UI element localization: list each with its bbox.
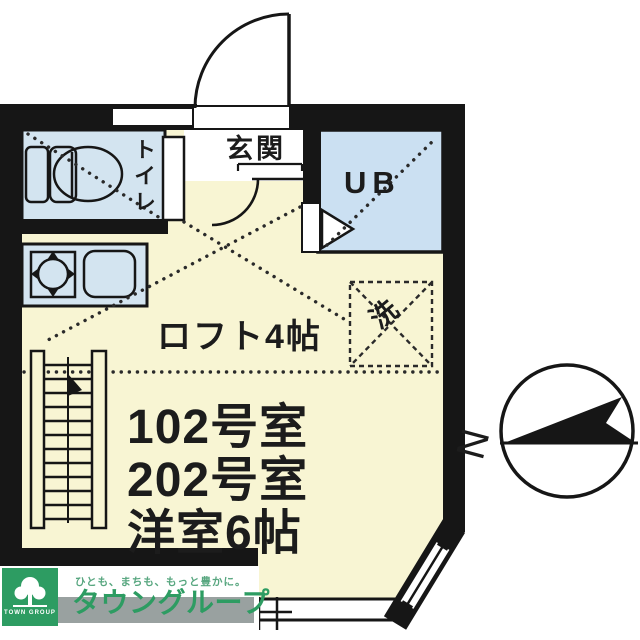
wall-left (0, 104, 22, 550)
unit-number-102: 102号室 (127, 404, 308, 452)
brand-tagline: ひとも、まちも、もっと豊かに。 (75, 577, 247, 588)
entrance-label: 玄関 (226, 136, 286, 163)
bottom-window (256, 597, 396, 630)
floor-plan-canvas: 玄関 トイレ UB ロフト4帖 洗 102号室 202号室 洋室6帖 N ひとも… (0, 0, 640, 640)
unit-bath-label: UB (344, 167, 401, 198)
toilet-door (163, 137, 184, 220)
loft-ladder (31, 351, 106, 528)
wall-entrance-bath (303, 128, 321, 208)
entry-door-threshold (193, 106, 290, 129)
loft-label: ロフト4帖 (157, 320, 322, 354)
brand-logo-caption: TOWN GROUP (2, 610, 58, 616)
entry-door-swing-arc (195, 14, 289, 108)
brand-company-name: タウングループ (72, 589, 270, 617)
toilet-label: トイレ (132, 138, 154, 216)
wall-right (443, 104, 465, 532)
compass-north-arrow (504, 397, 636, 443)
bath-door (302, 203, 320, 252)
top-wall-window (112, 108, 194, 126)
wall-top-right (288, 104, 465, 130)
wall-below-toilet (22, 219, 168, 234)
unit-number-202: 202号室 (127, 457, 308, 505)
compass (500, 365, 638, 497)
room-size-label: 洋室6帖 (127, 510, 302, 558)
